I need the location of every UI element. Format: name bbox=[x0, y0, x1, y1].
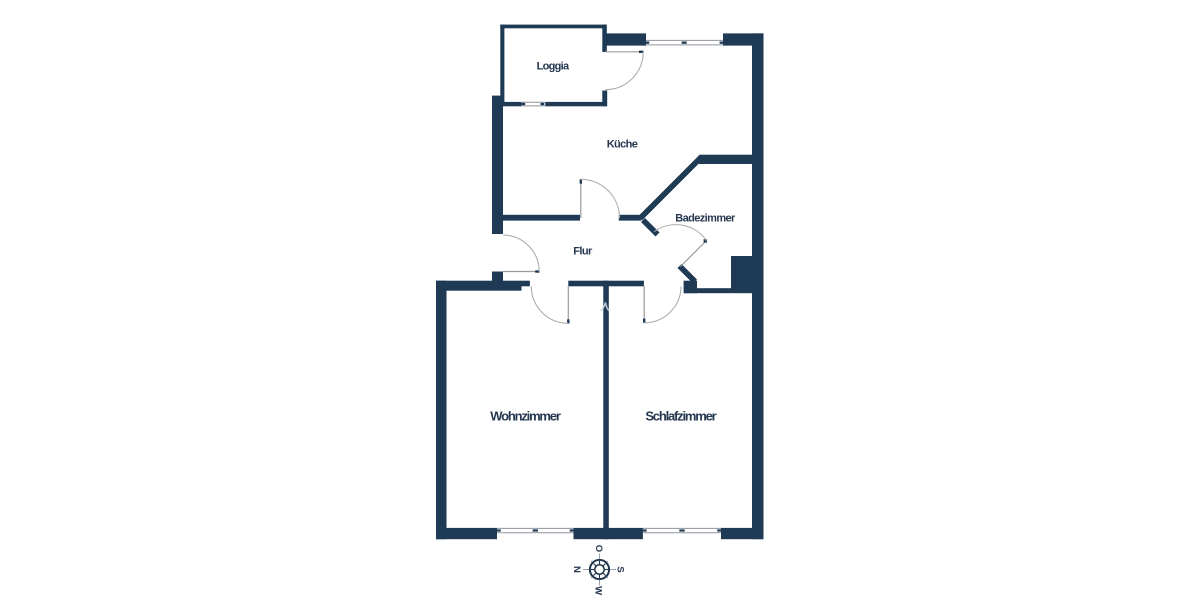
svg-text:Loggia: Loggia bbox=[537, 60, 570, 72]
svg-text:S: S bbox=[615, 566, 626, 572]
svg-text:Schlafzimmer: Schlafzimmer bbox=[645, 409, 716, 424]
svg-text:Wohnzimmer: Wohnzimmer bbox=[490, 409, 561, 424]
svg-text:Badezimmer: Badezimmer bbox=[675, 212, 736, 224]
svg-text:Küche: Küche bbox=[607, 139, 638, 151]
svg-text:Flur: Flur bbox=[573, 246, 593, 258]
svg-text:W: W bbox=[593, 586, 604, 595]
svg-text:O: O bbox=[593, 545, 604, 552]
svg-text:N: N bbox=[571, 566, 582, 573]
